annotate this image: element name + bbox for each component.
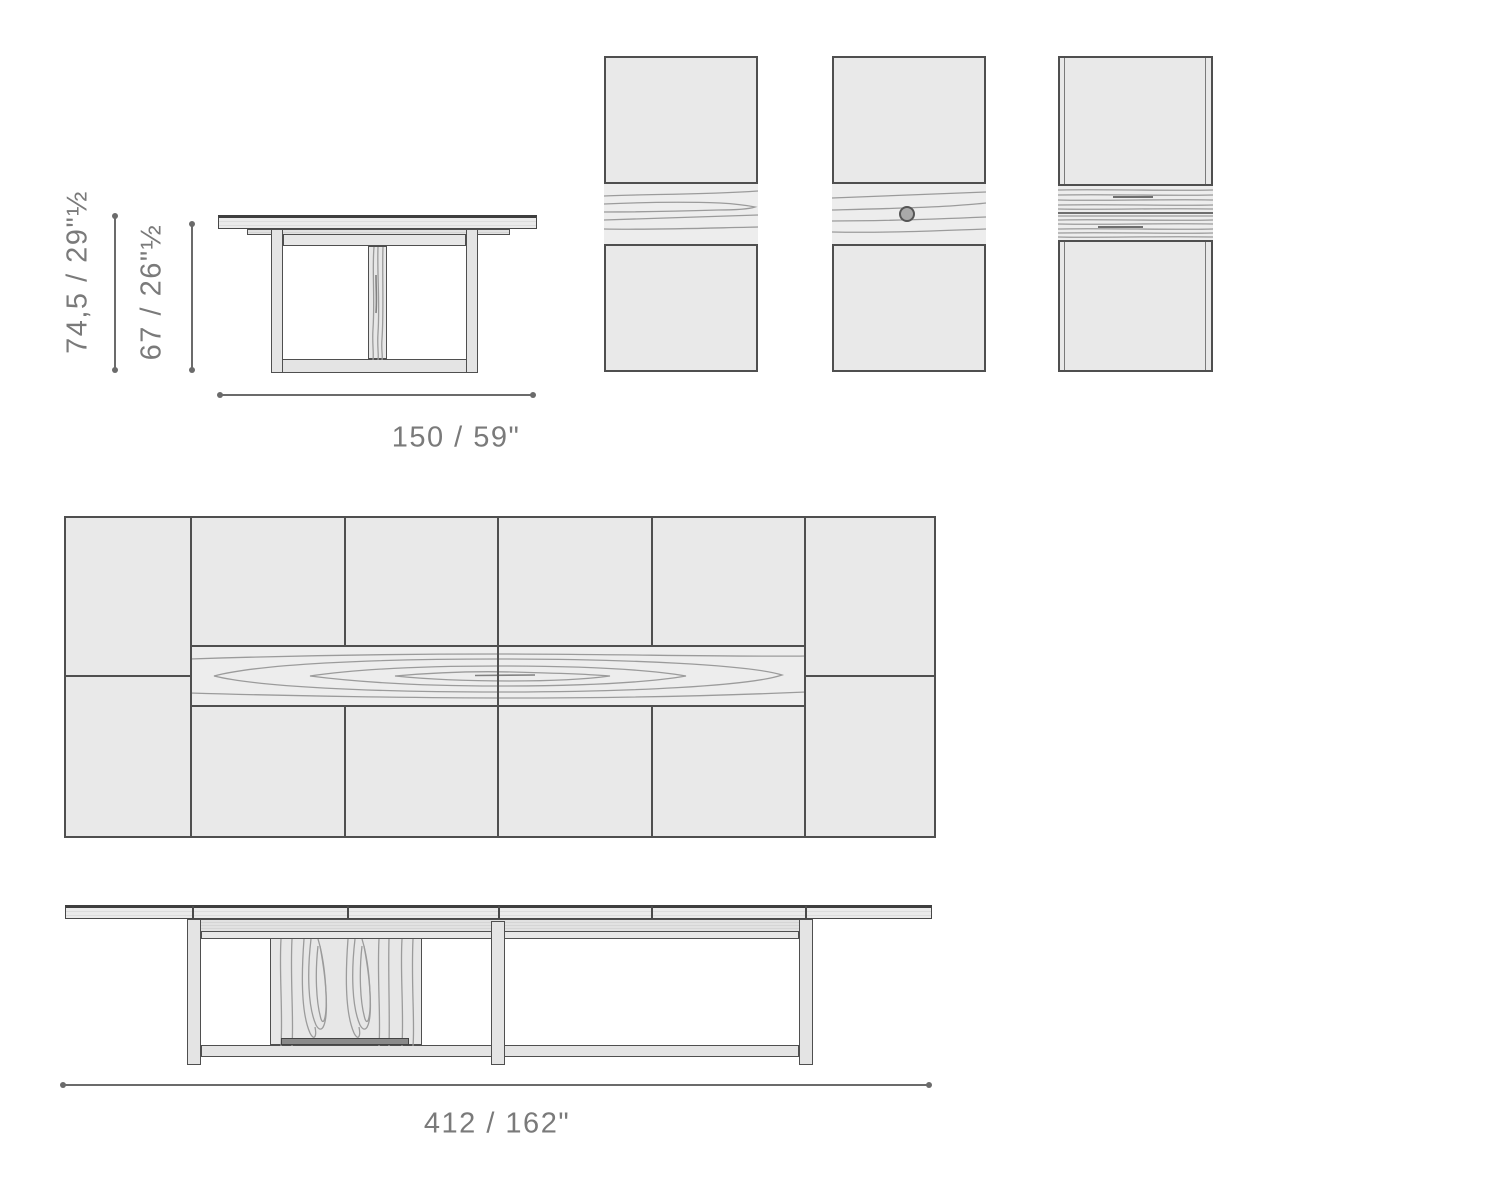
side-panel-plinth [281, 1038, 409, 1045]
plan-divider [651, 707, 653, 838]
plan-divider [344, 516, 346, 645]
dimension-endpoint [60, 1082, 66, 1088]
dimension-endpoint [112, 213, 118, 219]
tabletop-seam [347, 906, 349, 918]
dimension-line-total-height [114, 216, 116, 370]
dimension-line-front-width [220, 394, 533, 396]
side-left-leg [187, 919, 201, 1065]
plan-divider [804, 516, 806, 838]
plan-divider [344, 707, 346, 838]
front-right-leg [466, 229, 478, 373]
label-front-width: 150 / 59" [392, 422, 521, 455]
front-center-post [368, 246, 387, 359]
label-total-height: 74,5 / 29"½ [62, 190, 95, 354]
wood-grain [604, 184, 758, 244]
tabletop-seam [805, 906, 807, 918]
dimension-endpoint [530, 392, 536, 398]
front-apron [283, 234, 466, 246]
plan-divider [190, 516, 192, 838]
panel-grain-band [604, 182, 758, 246]
side-middle-leg [491, 921, 505, 1065]
plan-end-leaf-split [804, 675, 936, 677]
label-side-length: 412 / 162" [424, 1108, 570, 1141]
label-clearance-height: 67 / 26"½ [136, 224, 169, 361]
dimension-endpoint [189, 221, 195, 227]
dimension-endpoint [112, 367, 118, 373]
panel-grain-band [1058, 184, 1213, 242]
side-grain-panel [270, 938, 422, 1045]
plan-center-seam [497, 516, 499, 838]
plan-divider [651, 516, 653, 645]
dimension-endpoint [926, 1082, 932, 1088]
front-post-wood-grain [369, 247, 388, 360]
dimension-endpoint [189, 367, 195, 373]
wood-knot [899, 206, 915, 222]
tabletop-seam [192, 906, 194, 918]
side-right-leg [799, 919, 813, 1065]
dimension-endpoint [217, 392, 223, 398]
tabletop-seam [651, 906, 653, 918]
wood-grain-dense [1058, 186, 1213, 240]
dimension-line-side-length [63, 1084, 931, 1086]
dimension-line-clearance-height [191, 224, 193, 370]
tabletop-seam [498, 906, 500, 918]
front-bottom-rail [271, 359, 478, 373]
plan-end-leaf-split [64, 675, 190, 677]
furniture-technical-drawing: 74,5 / 29"½ 67 / 26"½ 150 / 59" [0, 0, 1500, 1197]
front-left-leg [271, 229, 283, 373]
front-tabletop [218, 215, 537, 229]
side-panel-wood-grain [271, 939, 423, 1046]
